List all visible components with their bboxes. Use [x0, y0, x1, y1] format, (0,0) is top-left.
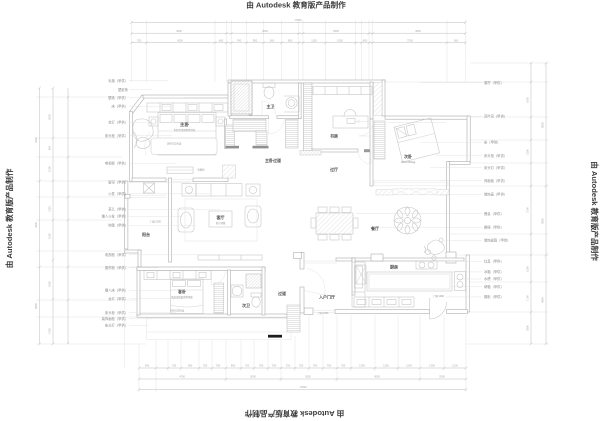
svg-text:1700: 1700: [526, 295, 530, 301]
svg-text:1950: 1950: [526, 97, 530, 103]
svg-text:1300: 1300: [429, 364, 435, 368]
svg-text:780: 780: [237, 38, 242, 42]
svg-text:橱柜（甲供）: 橱柜（甲供）: [484, 294, 504, 299]
svg-text:1500X2000床: 1500X2000床: [170, 309, 185, 313]
svg-text:窗帘柜（甲供）: 窗帘柜（甲供）: [105, 265, 128, 270]
svg-text:床（甲供）: 床（甲供）: [484, 140, 500, 145]
svg-text:床头柜（甲供）: 床头柜（甲供）: [105, 310, 128, 315]
svg-text:1200: 1200: [406, 364, 412, 368]
svg-text:3750: 3750: [407, 38, 413, 42]
svg-text:700: 700: [203, 364, 208, 368]
svg-text:1250: 1250: [383, 364, 389, 368]
svg-text:17800: 17800: [299, 385, 307, 389]
svg-text:客卧: 客卧: [177, 288, 186, 294]
svg-text:次卧: 次卧: [404, 153, 412, 159]
svg-text:沙发（甲供）: 沙发（甲供）: [108, 191, 128, 196]
svg-text:毛毯（甲供）: 毛毯（甲供）: [108, 78, 128, 83]
svg-text:门洞 1000: 门洞 1000: [318, 311, 329, 315]
svg-text:700: 700: [245, 364, 250, 368]
svg-text:1550: 1550: [48, 233, 52, 239]
svg-text:750: 750: [327, 364, 332, 368]
svg-text:850: 850: [253, 38, 258, 42]
svg-text:过厅: 过厅: [330, 166, 338, 172]
svg-text:750: 750: [137, 38, 142, 42]
svg-text:1800: 1800: [526, 325, 530, 331]
svg-text:床头柜（甲供）: 床头柜（甲供）: [484, 153, 507, 158]
svg-text:餐桌（甲供）: 餐桌（甲供）: [484, 211, 504, 216]
svg-text:2500: 2500: [439, 375, 445, 379]
svg-text:4950: 4950: [541, 297, 545, 303]
svg-text:4700: 4700: [179, 375, 185, 379]
svg-text:1500: 1500: [526, 266, 530, 272]
svg-text:2700: 2700: [526, 207, 530, 213]
svg-text:900: 900: [454, 38, 459, 42]
svg-text:850: 850: [288, 38, 293, 42]
svg-text:电视柜（甲供）: 电视柜（甲供）: [105, 161, 128, 166]
svg-text:2050: 2050: [48, 114, 52, 120]
svg-text:1200: 1200: [48, 166, 52, 172]
svg-text:4300: 4300: [34, 222, 38, 228]
svg-text:门洞 2100: 门洞 2100: [150, 220, 161, 224]
svg-text:门洞 1000: 门洞 1000: [433, 294, 444, 298]
svg-text:电视柜（甲供）: 电视柜（甲供）: [105, 252, 128, 257]
svg-text:600: 600: [219, 38, 224, 42]
svg-text:900: 900: [270, 38, 275, 42]
svg-text:过道: 过道: [278, 290, 286, 296]
svg-text:台灯（甲供）: 台灯（甲供）: [108, 296, 128, 301]
svg-text:床头柜（甲供）: 床头柜（甲供）: [105, 133, 128, 138]
svg-text:餐椅（甲供）: 餐椅（甲供）: [484, 224, 504, 229]
svg-text:700: 700: [172, 364, 177, 368]
svg-text:次卫: 次卫: [242, 302, 250, 308]
svg-text:窗帘（甲供）: 窗帘（甲供）: [108, 180, 128, 185]
svg-text:电视柜: 电视柜: [197, 168, 205, 172]
svg-text:茶几（甲供）: 茶几（甲供）: [108, 207, 128, 212]
svg-text:1300: 1300: [359, 364, 365, 368]
svg-text:壁纸（甲供）: 壁纸（甲供）: [108, 95, 128, 100]
svg-text:4250: 4250: [34, 137, 38, 143]
svg-text:1150: 1150: [48, 206, 52, 212]
svg-text:3000: 3000: [250, 375, 256, 379]
svg-text:床头灯（甲供）: 床头灯（甲供）: [105, 323, 128, 328]
svg-text:餐厅: 餐厅: [370, 225, 379, 231]
svg-text:750: 750: [216, 364, 221, 368]
svg-text:冰箱（甲供）: 冰箱（甲供）: [484, 269, 504, 274]
svg-text:900: 900: [145, 364, 150, 368]
svg-text:烤箱（甲供）: 烤箱（甲供）: [484, 284, 504, 289]
svg-text:3050: 3050: [305, 375, 311, 379]
svg-text:装饰画柜（甲供）: 装饰画柜（甲供）: [102, 316, 128, 321]
svg-text:百叶帘（甲供）: 百叶帘（甲供）: [484, 114, 507, 119]
svg-text:厨房: 厨房: [390, 264, 398, 270]
svg-text:4650: 4650: [415, 29, 421, 33]
svg-text:壁纸条: 壁纸条: [118, 87, 129, 92]
svg-text:懒人沙发（甲供）: 懒人沙发（甲供）: [102, 214, 128, 219]
svg-text:3900: 3900: [333, 29, 339, 33]
svg-text:由 Autodesk 教育版产品制作: 由 Autodesk 教育版产品制作: [244, 409, 344, 419]
svg-text:饰面板（甲供）: 饰面板（甲供）: [484, 178, 507, 183]
svg-text:由 Autodesk 教育版产品制作: 由 Autodesk 教育版产品制作: [4, 168, 14, 268]
svg-text:3850: 3850: [541, 218, 545, 224]
svg-text:3650: 3650: [262, 29, 268, 33]
svg-text:1650: 1650: [48, 281, 52, 287]
svg-text:1550: 1550: [337, 38, 343, 42]
svg-text:600: 600: [363, 38, 368, 42]
svg-text:乳胶漆顶面壁纸墙面: 乳胶漆顶面壁纸墙面: [171, 295, 193, 299]
svg-text:3850: 3850: [34, 303, 38, 309]
svg-text:阳台: 阳台: [142, 231, 150, 237]
svg-text:床（甲供）: 床（甲供）: [112, 104, 128, 109]
svg-text:客厅: 客厅: [216, 214, 225, 220]
svg-text:950: 950: [188, 364, 193, 368]
svg-text:17800: 17800: [294, 18, 302, 22]
svg-text:800: 800: [231, 364, 236, 368]
svg-text:4500: 4500: [374, 375, 380, 379]
svg-text:750: 750: [286, 364, 291, 368]
svg-text:6850: 6850: [541, 122, 545, 128]
svg-text:床头灯（甲供）: 床头灯（甲供）: [484, 165, 507, 170]
svg-text:懒人床（甲供）: 懒人床（甲供）: [105, 288, 128, 293]
svg-text:1300: 1300: [526, 149, 530, 155]
svg-text:台灯（甲供）: 台灯（甲供）: [108, 120, 128, 125]
svg-text:装饰画（甲供）: 装饰画（甲供）: [484, 192, 507, 197]
svg-text:主卧过道: 主卧过道: [265, 157, 281, 163]
svg-text:700: 700: [272, 364, 277, 368]
svg-text:1800X2100床: 1800X2100床: [167, 142, 182, 146]
svg-text:书房: 书房: [330, 133, 338, 139]
svg-text:950: 950: [48, 145, 52, 150]
svg-text:1200: 1200: [452, 364, 458, 368]
svg-text:750: 750: [341, 364, 346, 368]
svg-text:由 Autodesk 教育版产品制作: 由 Autodesk 教育版产品制作: [590, 161, 600, 261]
svg-text:地毯（甲供）: 地毯（甲供）: [108, 223, 128, 228]
svg-text:4650: 4650: [176, 29, 182, 33]
svg-text:750: 750: [299, 364, 304, 368]
svg-text:由 Autodesk 教育版产品制作: 由 Autodesk 教育版产品制作: [246, 0, 346, 10]
svg-text:水槽（甲供）: 水槽（甲供）: [484, 276, 504, 281]
svg-text:750: 750: [259, 364, 264, 368]
svg-text:4250: 4250: [177, 38, 183, 42]
svg-text:茶几地毯: 茶几地毯: [216, 221, 226, 225]
svg-text:1350: 1350: [48, 328, 52, 334]
svg-text:灶具（甲供）: 灶具（甲供）: [484, 258, 504, 263]
svg-text:窗帘（甲供）: 窗帘（甲供）: [484, 80, 504, 85]
svg-text:750: 750: [313, 364, 318, 368]
svg-text:装饰盆栽（甲供）: 装饰盆栽（甲供）: [484, 238, 510, 243]
svg-text:1150: 1150: [311, 38, 317, 42]
